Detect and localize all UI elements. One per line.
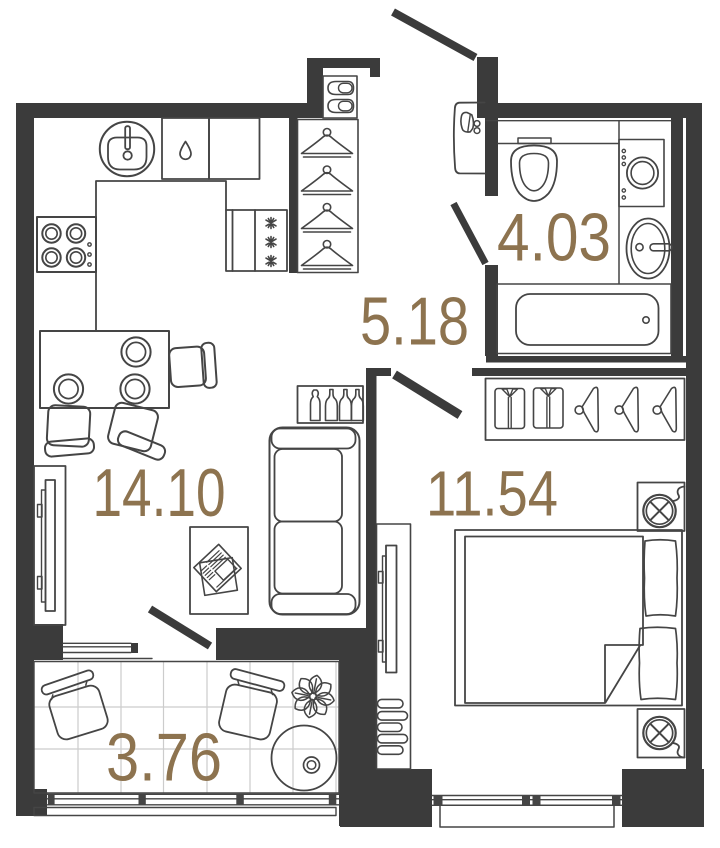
svg-text:3.76: 3.76	[106, 720, 222, 796]
svg-text:4.03: 4.03	[497, 199, 611, 275]
svg-text:5.18: 5.18	[360, 284, 469, 360]
svg-text:11.54: 11.54	[426, 458, 558, 530]
svg-text:14.10: 14.10	[93, 455, 226, 531]
